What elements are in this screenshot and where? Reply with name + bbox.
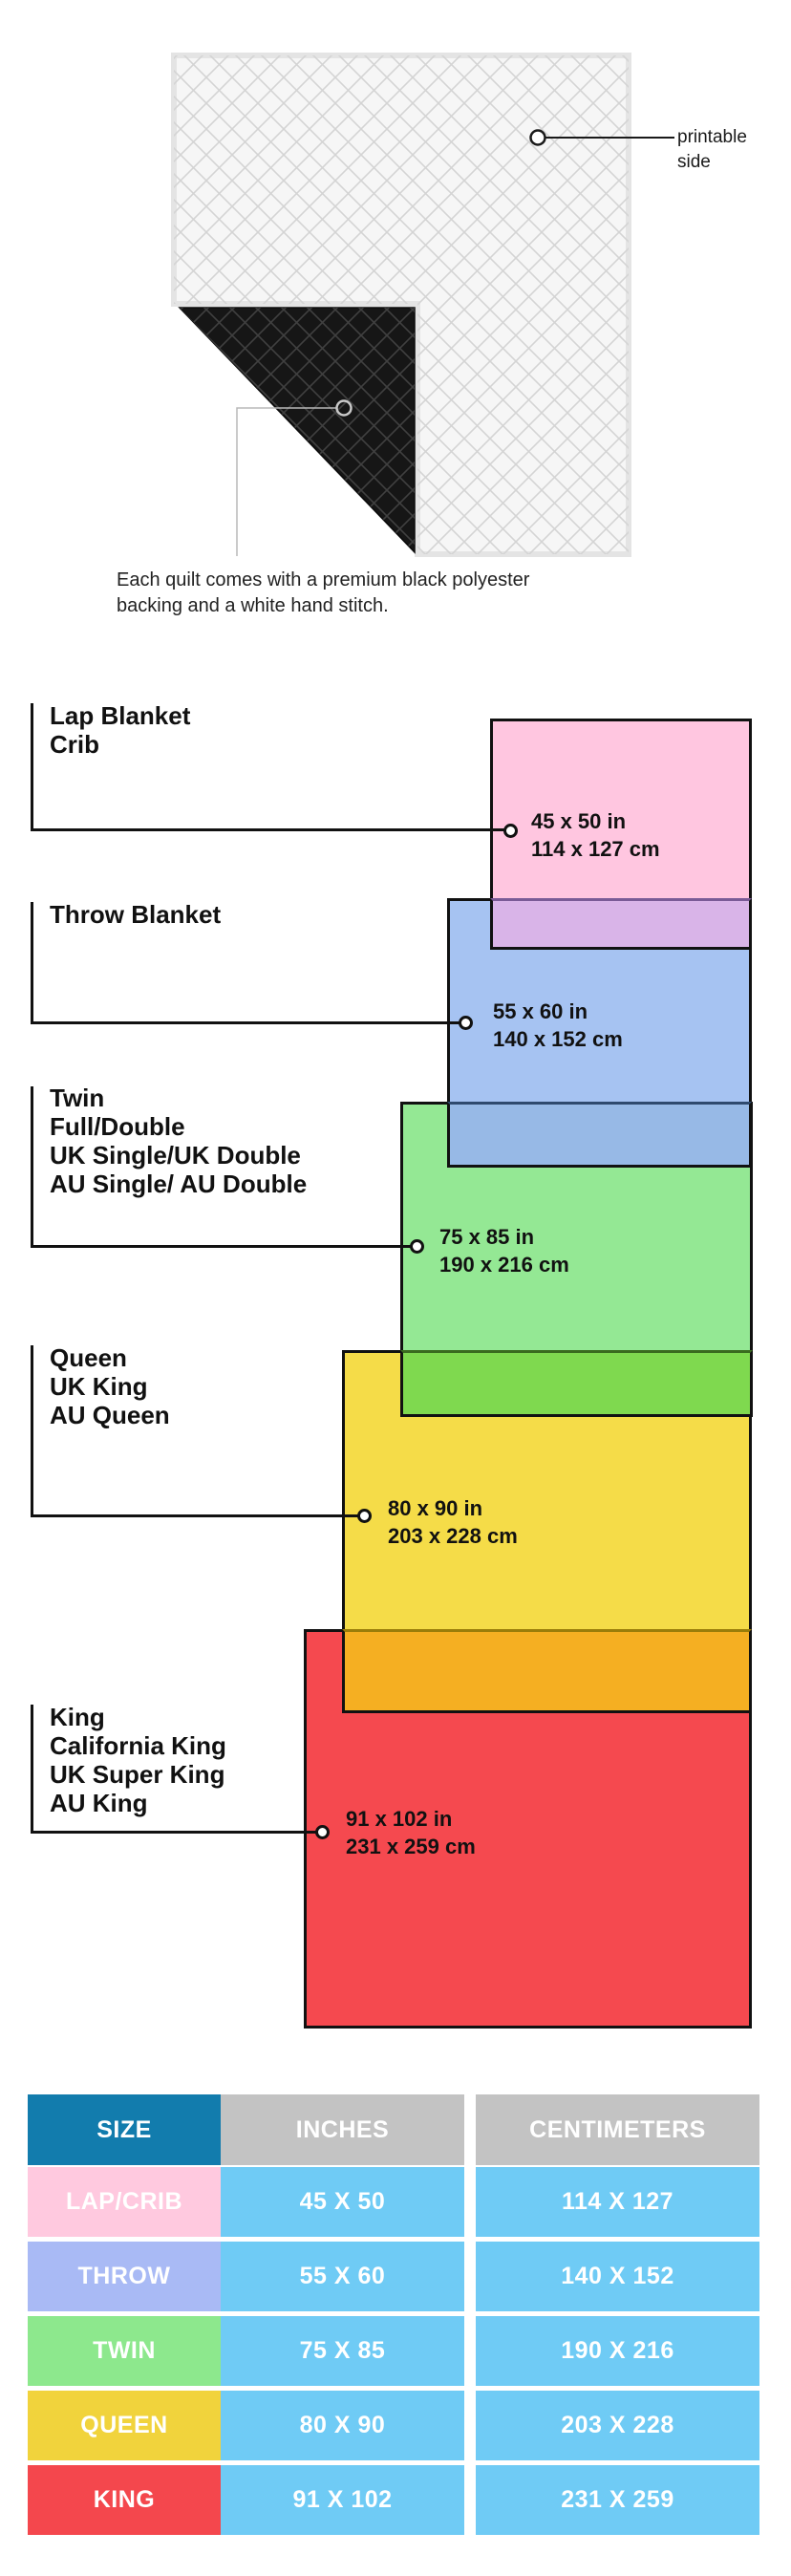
quilt-caption-line2: backing and a white hand stitch. <box>117 593 529 619</box>
table-row-lap-crib-cm: 114 X 127 <box>476 2167 759 2237</box>
table-row-queen-cm: 203 X 228 <box>476 2391 759 2460</box>
quilt-caption: Each quilt comes with a premium black po… <box>117 568 529 619</box>
size-dims-king: 91 x 102 in 231 x 259 cm <box>346 1805 476 1860</box>
table-row-throw-inches: 55 X 60 <box>221 2242 464 2311</box>
callout-marker-throw <box>459 1016 473 1030</box>
printable-side-label-line1: printable <box>677 125 747 150</box>
label-line: UK Single/UK Double <box>50 1141 307 1170</box>
label-lap-crib: Lap Blanket Crib <box>50 701 190 759</box>
printable-side-label-line2: side <box>677 150 747 175</box>
table-header-centimeters: CENTIMETERS <box>476 2094 759 2165</box>
size-dims-queen-in: 80 x 90 in <box>388 1494 518 1522</box>
callout-vline-king <box>31 1705 33 1834</box>
table-row-twin-inches: 75 X 85 <box>221 2316 464 2386</box>
label-line: King <box>50 1703 226 1731</box>
size-dims-queen-cm: 203 x 228 cm <box>388 1522 518 1550</box>
label-twin: Twin Full/Double UK Single/UK Double AU … <box>50 1084 307 1198</box>
quilt-size-infographic: printable side Each quilt comes with a p… <box>0 0 791 2576</box>
label-line: California King <box>50 1731 226 1760</box>
label-king: King California King UK Super King AU Ki… <box>50 1703 226 1817</box>
label-line: Lap Blanket <box>50 701 190 730</box>
table-row-queen-size: QUEEN <box>28 2391 221 2460</box>
callout-hline-king <box>31 1831 322 1834</box>
table-row-king-size: KING <box>28 2465 221 2535</box>
callout-hline-lap-crib <box>31 828 510 831</box>
overlap-throw-twin <box>447 1102 752 1168</box>
size-dims-lap-crib-in: 45 x 50 in <box>531 807 660 835</box>
callout-vline-throw <box>31 902 33 1024</box>
table-row-lap-crib-inches: 45 X 50 <box>221 2167 464 2237</box>
quilt-caption-line1: Each quilt comes with a premium black po… <box>117 568 529 593</box>
table-row-twin-size: TWIN <box>28 2316 221 2386</box>
printable-side-label: printable side <box>677 125 747 175</box>
table-row-twin-cm: 190 X 216 <box>476 2316 759 2386</box>
label-line: UK King <box>50 1372 170 1401</box>
callout-hline-twin <box>31 1245 417 1248</box>
size-dims-lap-crib-cm: 114 x 127 cm <box>531 835 660 863</box>
label-line: AU Single/ AU Double <box>50 1170 307 1198</box>
table-header-size: SIZE <box>28 2094 221 2165</box>
callout-hline-throw <box>31 1021 465 1024</box>
size-dims-throw-cm: 140 x 152 cm <box>493 1025 623 1053</box>
label-line: Full/Double <box>50 1112 307 1141</box>
overlap-twin-queen <box>400 1350 753 1417</box>
size-dims-throw-in: 55 x 60 in <box>493 998 623 1025</box>
callout-marker-king <box>315 1825 330 1839</box>
table-row-throw-size: THROW <box>28 2242 221 2311</box>
label-line: AU King <box>50 1789 226 1817</box>
overlap-queen-king <box>342 1629 752 1713</box>
table-header-inches: INCHES <box>221 2094 464 2165</box>
callout-vline-twin <box>31 1086 33 1248</box>
size-dims-twin-cm: 190 x 216 cm <box>439 1251 569 1278</box>
callout-vline-queen <box>31 1345 33 1517</box>
callout-marker-queen <box>357 1509 372 1523</box>
size-dims-twin: 75 x 85 in 190 x 216 cm <box>439 1223 569 1278</box>
label-line: Twin <box>50 1084 307 1112</box>
callout-vline-lap-crib <box>31 703 33 831</box>
label-queen: Queen UK King AU Queen <box>50 1343 170 1429</box>
size-dims-throw: 55 x 60 in 140 x 152 cm <box>493 998 623 1053</box>
table-row-king-inches: 91 X 102 <box>221 2465 464 2535</box>
printable-side-marker <box>531 131 545 145</box>
table-row-king-cm: 231 X 259 <box>476 2465 759 2535</box>
size-dims-lap-crib: 45 x 50 in 114 x 127 cm <box>531 807 660 863</box>
callout-marker-twin <box>410 1239 424 1254</box>
label-line: AU Queen <box>50 1401 170 1429</box>
label-line: UK Super King <box>50 1760 226 1789</box>
quilt-back-pattern <box>180 308 415 552</box>
label-line: Throw Blanket <box>50 900 221 929</box>
size-dims-twin-in: 75 x 85 in <box>439 1223 569 1251</box>
table-row-throw-cm: 140 X 152 <box>476 2242 759 2311</box>
table-row-lap-crib-size: LAP/CRIB <box>28 2167 221 2237</box>
callout-hline-queen <box>31 1514 364 1517</box>
overlap-lap-throw <box>490 898 752 950</box>
size-dims-king-cm: 231 x 259 cm <box>346 1833 476 1860</box>
label-line: Crib <box>50 730 190 759</box>
table-row-queen-inches: 80 X 90 <box>221 2391 464 2460</box>
callout-marker-lap-crib <box>503 824 518 838</box>
label-throw: Throw Blanket <box>50 900 221 929</box>
size-dims-queen: 80 x 90 in 203 x 228 cm <box>388 1494 518 1550</box>
size-dims-king-in: 91 x 102 in <box>346 1805 476 1833</box>
label-line: Queen <box>50 1343 170 1372</box>
